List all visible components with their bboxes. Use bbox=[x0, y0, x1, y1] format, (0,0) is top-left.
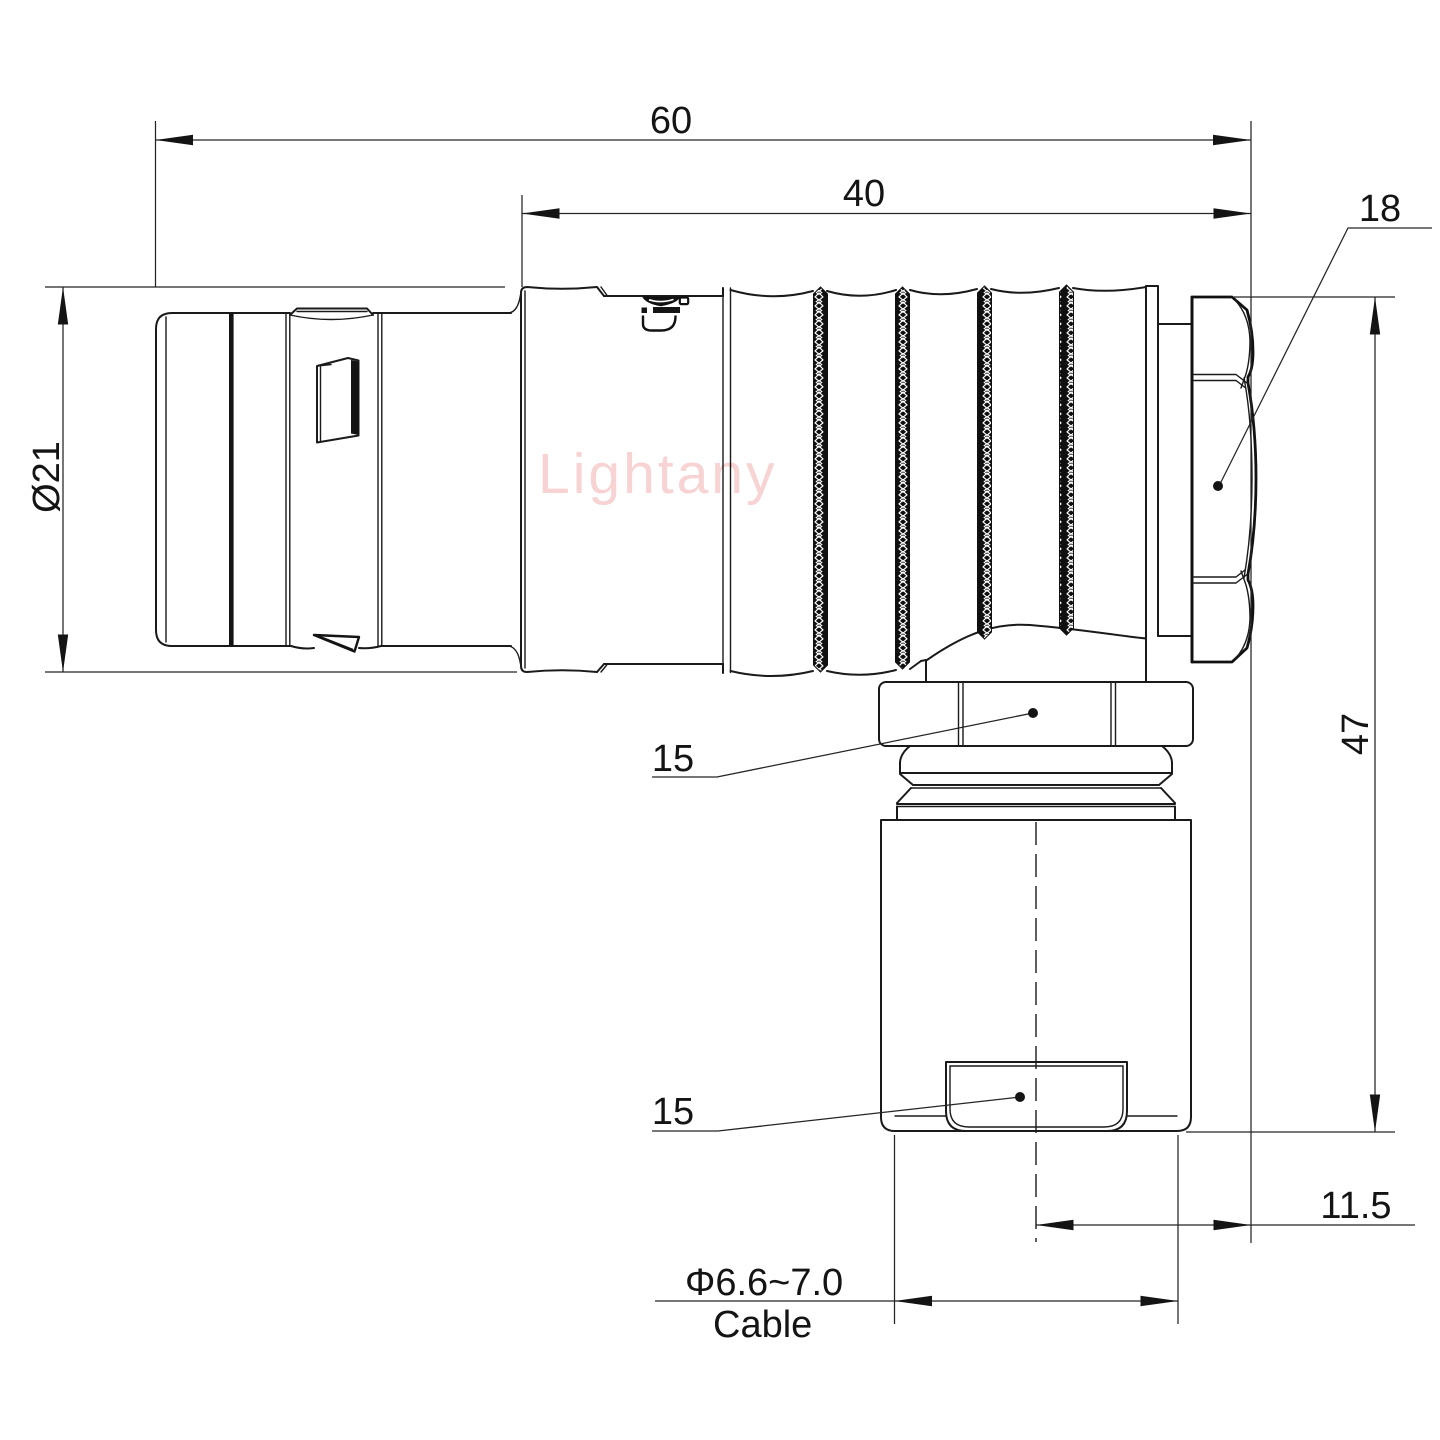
svg-text:18: 18 bbox=[1359, 188, 1401, 230]
svg-text:15: 15 bbox=[652, 738, 694, 780]
svg-text:Ø21: Ø21 bbox=[26, 441, 68, 513]
svg-text:40: 40 bbox=[843, 173, 885, 215]
svg-text:Lightany: Lightany bbox=[538, 442, 778, 506]
svg-text:Cable: Cable bbox=[713, 1304, 812, 1346]
svg-text:11.5: 11.5 bbox=[1320, 1185, 1391, 1227]
svg-text:60: 60 bbox=[650, 100, 692, 142]
svg-text:Φ6.6~7.0: Φ6.6~7.0 bbox=[685, 1262, 843, 1304]
svg-text:47: 47 bbox=[1335, 713, 1377, 755]
svg-text:15: 15 bbox=[652, 1091, 694, 1133]
